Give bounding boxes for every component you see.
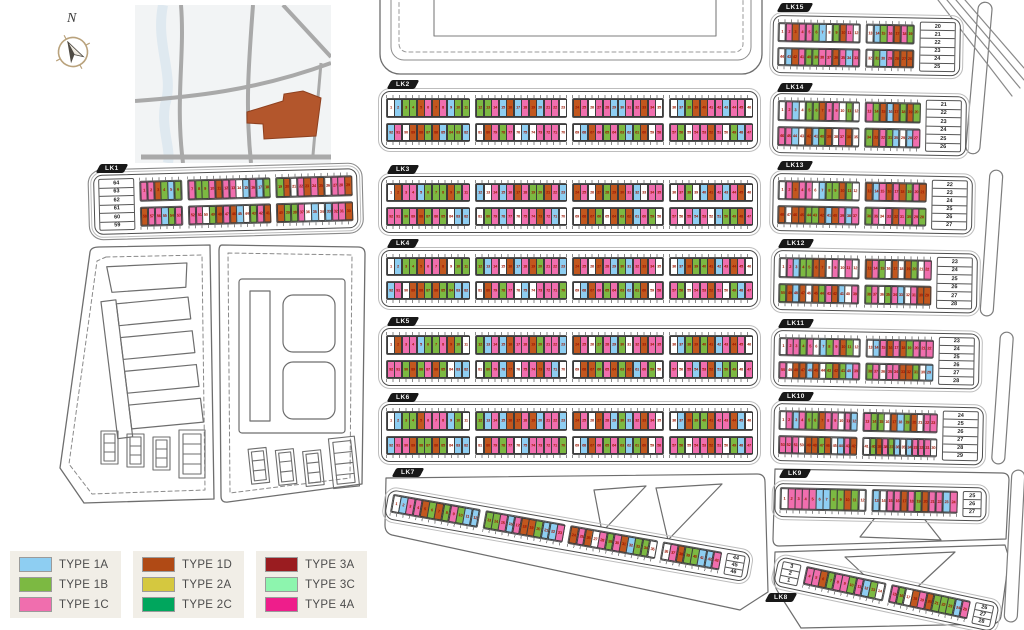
lot-number: 36 [672,102,676,113]
lot-number: 16 [885,417,889,428]
lot-number: 80 [486,127,490,138]
lot-LK13-37: 37 [852,207,859,225]
lot-LK5-35: 35 [655,336,663,354]
lot-LK3-47: 47 [745,208,753,225]
legend-label: TYPE 1D [182,559,232,571]
lot-number: 12 [854,186,858,197]
lot-number: 65 [605,364,609,375]
lot-number: 87 [426,440,430,451]
lot-LK10-30: 30 [930,439,937,457]
lot-number: 10 [840,185,844,196]
lot-number: 87 [426,364,430,375]
lot-LK3-70: 70 [559,208,567,225]
lot-group: 2425262728293031323334356968676665646362… [572,95,664,145]
lot-number: 63 [620,364,624,375]
lot-number: 15 [888,494,892,508]
lot-number: 14 [875,343,879,354]
side-lot-column: 646362616059 [98,178,135,231]
lot-row: 3637383940414243444546 [669,335,753,355]
lot-number: 92 [389,127,393,138]
lot-number: 46 [746,339,750,350]
lot-number: 18 [523,339,527,350]
lot-number: 30 [907,211,911,222]
lot-number: 32 [635,102,639,113]
lot-number: 67 [590,440,594,451]
tick-comb [386,142,470,145]
lot-number: 44 [820,288,824,300]
lot-number: 48 [739,285,743,296]
tick-comb [475,142,567,145]
lot-number: 31 [627,261,631,272]
lot-number: 13 [866,416,870,427]
lot-LK14-35: 35 [852,128,860,147]
lot-number: 37 [889,441,893,452]
lot-row: 363534333231302928 [864,206,926,227]
lot-number: 35 [657,415,661,426]
lot-row: 121314151617181920212223 [475,183,567,202]
lot-number: 4 [801,342,805,353]
lot-number: 34 [894,367,898,378]
lot-number: 66 [597,127,601,138]
lot-number: 11 [464,261,468,272]
lot-number: 72 [545,364,549,375]
lot-number: 79 [493,211,497,222]
lot-number: 43 [724,102,728,113]
lot-number: 62 [627,211,631,222]
lot-number: 8 [441,415,445,426]
lot-number: 31 [874,52,878,63]
lot-number: 39 [854,366,858,377]
lot-number: 9 [203,183,207,195]
lot-number: 82 [464,211,468,222]
lot-row: 9291908988878685848382 [386,360,470,380]
lot-number: 60 [642,127,646,138]
lot-number: 27 [597,187,601,198]
lot-number: 20 [914,343,918,354]
side-lot-column: 232425262728 [938,337,975,386]
legend-item: TYPE 2A [142,577,232,592]
lot-number: 16 [886,263,890,275]
lot-row: 1314151617181920212223 [863,412,938,433]
lot-number: 59 [650,211,654,222]
lot-number: 6 [814,262,818,274]
block-label-LK15: LK15 [777,3,814,12]
lot-number: 28 [920,211,924,222]
block-LK15: 1234567891011124443424140393837363534331… [772,15,961,76]
tick-comb [777,146,859,150]
lot-LK1-18: 18 [263,178,271,197]
lot-number: 68 [582,127,586,138]
lot-number: 40 [807,51,811,62]
lot-number: 45 [739,415,743,426]
lot-number: 73 [538,364,542,375]
lot-LK15-33: 33 [852,49,860,67]
lot-number: 28 [605,187,609,198]
lot-number: 77 [508,211,512,222]
lot-number: 35 [854,131,858,143]
lot-number: 73 [538,285,542,296]
lot-number: 22 [926,264,930,276]
side-lot-column: 232425262728 [936,257,973,310]
lot-number: 32 [907,367,911,378]
lot-number: 4 [800,105,804,117]
lot-number: 36 [879,289,883,301]
lot-number: 32 [635,339,639,350]
block-label-text: LK12 [787,240,805,247]
lot-number: 52 [709,285,713,296]
lot-number: 19 [916,495,920,509]
lot-number: 59 [650,127,654,138]
lot-number: 89 [411,127,415,138]
lot-number: 92 [389,285,393,296]
lot-number: 34 [867,131,871,143]
lot-number: 51 [716,364,720,375]
lot-number: 5 [807,105,811,117]
lot-number: 65 [605,127,609,138]
lot-number: 16 [888,106,892,118]
lot-row: 4039383736353433323130 [276,201,353,224]
lot-number: 56 [679,285,683,296]
block-label-text: LK14 [786,84,804,91]
lot-number: 37 [679,187,683,198]
lot-number: 25 [582,187,586,198]
lot-group: 1213141516171819202122238180797877767574… [475,254,567,303]
lot-number: 63 [620,127,624,138]
lot-number: 33 [642,187,646,198]
block-label-LK3: LK3 [387,165,420,174]
lot-number: 6 [814,185,818,196]
lot-number: 7 [434,102,438,113]
lot-number: 11 [847,106,851,118]
lot-number: 44 [780,51,784,62]
tick-comb [475,226,567,229]
lot-group: 131415161718192021363534333231302928 [864,179,927,230]
lot-number: 17 [516,339,520,350]
block-LK1: 6463626160591234565857565554537891011121… [93,168,358,235]
lot-LK7-35: 35 [647,540,658,558]
lot-number: 55 [687,440,691,451]
lot-number: 26 [590,339,594,350]
lot-number: 68 [582,364,586,375]
lot-number: 76 [516,285,520,296]
lot-number: 13 [231,183,235,195]
lot-number: 33 [874,132,878,144]
legend-item: TYPE 4A [265,597,355,612]
lot-number: 64 [612,285,616,296]
lot-number: 74 [530,127,534,138]
lot-number: 2 [787,26,791,37]
lot-number: 2 [149,185,153,197]
lot-number: 47 [746,285,750,296]
lot-number: 76 [516,211,520,222]
block-LK9: 1234567891011121314151617181920212223242… [774,483,987,521]
lot-number: 36 [834,52,838,63]
lot-number: 28 [907,132,911,144]
lot-number: 80 [486,364,490,375]
lot-number: 36 [672,187,676,198]
lot-number: 14 [873,263,877,275]
lot-number: 90 [404,211,408,222]
block-label-LK4: LK4 [387,239,420,248]
lot-number: 31 [912,289,916,301]
lot-number: 23 [560,102,564,113]
lot-number: 84 [449,127,453,138]
side-lot-column: 222324252627 [931,180,968,231]
lot-number: 33 [854,52,858,63]
lot-number: 15 [879,416,883,427]
lot-number: 57 [672,440,676,451]
block-label-LK6: LK6 [387,393,420,402]
lot-number: 8 [828,342,832,353]
lot-number: 51 [716,127,720,138]
lot-number: 42 [820,209,824,220]
lot-number: 9 [834,185,838,196]
lot-number: 15 [882,28,886,39]
row-gap [475,355,567,360]
lot-number: 7 [434,187,438,198]
block-LK4: 1234567891011929190898887868584838212131… [381,250,758,307]
lot-number: 51 [794,439,798,450]
lot-number: 11 [464,339,468,350]
lot-number: 50 [724,211,728,222]
lot-number: 10 [841,342,845,353]
lot-number: 45 [739,261,743,272]
lot-number: 62 [627,127,631,138]
lot-number: 6 [814,27,818,38]
lot-number: 18 [523,415,527,426]
lot-number: 35 [886,289,890,301]
lot-number: 58 [657,285,661,296]
lot-number: 38 [687,261,691,272]
lot-number: 47 [787,209,791,220]
lot-number: 3 [404,187,408,198]
lot-number: 3 [796,492,800,506]
lot-number: 29 [612,261,616,272]
lot-row: 123456789101112 [778,410,858,431]
lot-number: 8 [826,415,830,426]
lot-number: 12 [860,493,864,507]
lot-group: 1314151617181920212223 [482,510,566,546]
lot-number: 14 [493,261,497,272]
lot-row: 38373635343332313029 [865,362,934,382]
lot-group: 7891011121314151617185251504948474645444… [187,174,272,228]
legend-item: TYPE 3C [265,577,355,592]
lot-group: 123456789101112535251504948474645444342 [778,407,859,459]
lot-number: 54 [694,127,698,138]
lot-number: 91 [396,211,400,222]
lot-number: 44 [821,365,825,376]
lot-number: 1 [781,261,785,273]
lot-number: 2 [787,105,791,117]
lot-number: 27 [597,339,601,350]
lot-number: 15 [501,187,505,198]
lot-LK9-27: 27 [963,509,980,517]
lot-group: 1314151617181920212238373635343332313029 [864,256,932,309]
lot-number: 75 [523,127,527,138]
lot-number: 42 [716,187,720,198]
lot-number: 82 [464,127,468,138]
lot-number: 33 [642,339,646,350]
row-gap [572,118,664,123]
lot-row: 131415161718192021 [865,182,927,203]
lot-number: 25 [319,180,323,192]
lot-number: 58 [657,211,661,222]
lot-number: 20 [912,417,916,428]
lot-number: 3 [156,185,160,197]
lot-number: 32 [635,187,639,198]
block-label-text: LK7 [401,469,415,476]
lot-row: 3637383940414243444546 [669,411,753,431]
legend-swatch [19,597,52,612]
lot-number: 77 [508,285,512,296]
tick-comb [669,379,753,382]
lot-LK5-58: 58 [655,361,663,379]
lot-number: 10 [841,105,845,117]
lot-LK6-11: 11 [462,412,470,430]
lot-number: 41 [840,288,844,300]
lot-number: 8 [441,339,445,350]
lot-number: 59 [650,285,654,296]
lot-number: 83 [456,127,460,138]
lot-number: 86 [434,211,438,222]
lot-number: 72 [545,440,549,451]
lot-number: 14 [493,339,497,350]
lot-number: 76 [516,127,520,138]
lot-number: 52 [190,209,194,221]
lot-number: 37 [874,366,878,377]
lot-number: 28 [605,339,609,350]
lot-number: 73 [538,440,542,451]
lot-number: 61 [635,440,639,451]
lot-number: 20 [538,339,542,350]
lot-number: 59 [650,364,654,375]
lot-number: 3 [794,262,798,274]
lot-number: 11 [847,263,851,275]
lot-number: 58 [143,210,147,222]
block-LK6: 1234567891011929190898887868584838212131… [381,404,758,462]
lot-number: 8 [827,262,831,274]
lot-number: 42 [716,261,720,272]
lot-number: 44 [807,209,811,220]
lot-number: 10 [841,27,845,38]
tick-comb [386,300,470,303]
lot-number: 62 [627,285,631,296]
lot-LK14-26: 26 [926,143,960,151]
lot-number: 23 [560,261,564,272]
lot-number: 30 [881,53,885,64]
lot-number: 87 [426,211,430,222]
lot-number: 41 [709,261,713,272]
lot-number: 86 [434,285,438,296]
lot-number: 54 [694,285,698,296]
lot-number: 88 [419,285,423,296]
tick-comb [669,300,753,303]
lot-number: 22 [928,344,932,355]
lot-LK2-47: 47 [745,124,753,142]
lot-number: 14 [493,187,497,198]
lot-number: 21 [921,187,925,198]
lot-number: 52 [709,440,713,451]
lot-number: 26 [590,102,594,113]
lot-number: 1 [389,339,393,350]
lot-number: 19 [530,102,534,113]
lot-number: 39 [694,261,698,272]
lot-number: 77 [508,364,512,375]
lot-number: 31 [627,415,631,426]
lot-LK4-82: 82 [462,282,470,299]
lot-number: 15 [880,263,884,275]
lot-number: 19 [905,417,909,428]
lot-number: 33 [913,442,917,453]
lot-LK12-29: 29 [924,286,931,305]
lot-number: 75 [523,285,527,296]
lot-number: 27 [333,180,337,192]
lot-number: 30 [620,102,624,113]
lot-LK15-25: 25 [920,63,954,71]
lot-number: 12 [478,187,482,198]
block-LK14: 1234567891011124645444342414039383736351… [772,93,967,156]
block-label-text: LK5 [396,318,410,325]
lot-number: 3 [404,339,408,350]
lot-row: 818079787776757473727170 [475,207,567,226]
lot-number: 64 [612,440,616,451]
lot-number: 4 [800,185,804,196]
lot-LK5-46: 46 [745,336,753,354]
lot-row: 131415161718192021222324 [871,489,958,514]
lot-row: 123456789101112 [779,337,861,357]
lot-row: 242526272829303132333435 [572,183,664,202]
lot-group: 1920212223242526272829403938373635343332… [275,172,353,226]
lot-number: 34 [893,289,897,301]
lot-number: 5 [807,27,811,38]
block-body-LK8: 3214567891011121314151617181920212223242… [773,556,1000,630]
lot-number: 38 [820,52,824,63]
lot-number: 71 [553,127,557,138]
lot-number: 88 [419,127,423,138]
lot-row: 789101112131415161718 [187,177,271,200]
lot-number: 53 [702,285,706,296]
lot-LK14-27: 27 [912,129,920,148]
lot-number: 63 [620,211,624,222]
block-body-LK6: 1234567891011929190898887868584838212131… [381,404,758,462]
legend-label: TYPE 3C [305,579,355,591]
lot-number: 81 [478,211,482,222]
lot-number: 47 [746,440,750,451]
block-label-LK11: LK11 [778,319,814,328]
lot-number: 32 [881,132,885,144]
lot-number: 80 [486,440,490,451]
lot-number: 23 [944,495,948,509]
lot-number: 1 [782,492,786,506]
lot-number: 18 [909,494,913,508]
lot-number: 1 [780,26,784,37]
lot-number: 31 [900,211,904,222]
lot-number: 10 [456,261,460,272]
tick-comb [669,142,753,145]
lot-number: 49 [807,439,811,450]
lot-number: 45 [814,365,818,376]
lot-number: 5 [808,342,812,353]
lot-number: 1 [389,102,393,113]
lot-number: 61 [635,127,639,138]
lot-number: 24 [575,261,579,272]
lot-number: 11 [464,415,468,426]
lot-number: 12 [224,183,228,195]
lot-number: 16 [251,182,255,194]
lot-number: 34 [650,339,654,350]
lot-group: 1314151617181932313029282726 [865,21,915,72]
lot-LK10-23: 23 [930,414,937,432]
